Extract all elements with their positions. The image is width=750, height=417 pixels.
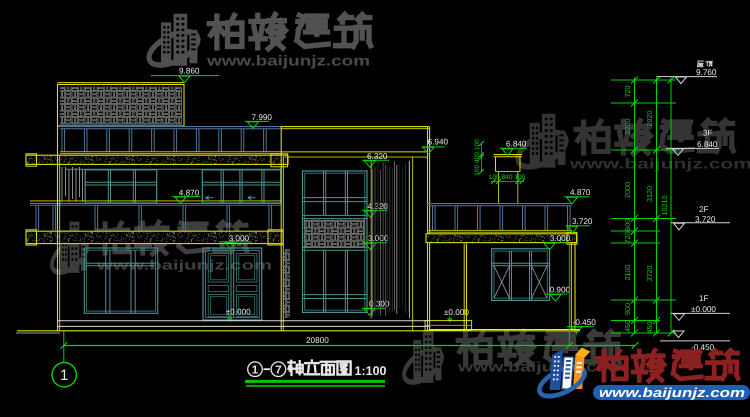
svg-text:6.320: 6.320 — [367, 152, 388, 161]
svg-text:4.870: 4.870 — [570, 188, 591, 197]
svg-text:9.860: 9.860 — [179, 67, 200, 76]
svg-text:0.300: 0.300 — [369, 300, 390, 309]
svg-text:±0.000: ±0.000 — [691, 305, 716, 314]
svg-text:www.baijunjz.com: www.baijunjz.com — [95, 258, 272, 273]
svg-text:600: 600 — [623, 219, 632, 231]
svg-text:www.baijunjz.com: www.baijunjz.com — [206, 54, 370, 70]
svg-text:10210: 10210 — [660, 196, 669, 216]
svg-text:450: 450 — [623, 320, 632, 332]
svg-text:3F: 3F — [703, 128, 713, 137]
svg-text:±0.000: ±0.000 — [226, 307, 251, 316]
svg-text:2100: 2100 — [623, 265, 632, 281]
svg-text:1: 1 — [60, 367, 68, 384]
svg-text:www.baijunjz.com: www.baijunjz.com — [569, 157, 750, 173]
svg-text:6.940: 6.940 — [428, 137, 449, 146]
svg-text:0.900: 0.900 — [550, 286, 571, 295]
svg-text:9.760: 9.760 — [696, 68, 717, 77]
svg-text:900: 900 — [623, 303, 632, 315]
svg-text:1: 1 — [252, 364, 259, 376]
svg-text:6.840: 6.840 — [506, 140, 527, 149]
svg-text:4.870: 4.870 — [179, 188, 200, 197]
svg-text:720: 720 — [623, 86, 632, 98]
svg-text:1F: 1F — [699, 294, 709, 303]
svg-text:-0.450: -0.450 — [573, 318, 597, 327]
svg-text:450: 450 — [645, 322, 654, 334]
svg-text:3720: 3720 — [645, 266, 654, 282]
svg-text:6.840: 6.840 — [697, 140, 718, 149]
svg-text:www.baijunjz.com: www.baijunjz.com — [599, 385, 746, 400]
svg-text:720: 720 — [623, 232, 632, 244]
svg-text:1:100: 1:100 — [355, 364, 387, 378]
svg-text:20800: 20800 — [306, 336, 329, 345]
svg-text:7: 7 — [275, 364, 281, 376]
svg-text:2200: 2200 — [623, 119, 632, 135]
svg-text:2000: 2000 — [623, 182, 632, 198]
svg-text:3.720: 3.720 — [572, 217, 593, 226]
svg-text:±0.000: ±0.000 — [444, 308, 469, 317]
svg-text:2F: 2F — [699, 205, 709, 214]
svg-text:2920: 2920 — [645, 111, 654, 127]
svg-text:7.990: 7.990 — [252, 113, 273, 122]
svg-text:3.000: 3.000 — [550, 234, 571, 243]
svg-text:3120: 3120 — [645, 186, 654, 202]
